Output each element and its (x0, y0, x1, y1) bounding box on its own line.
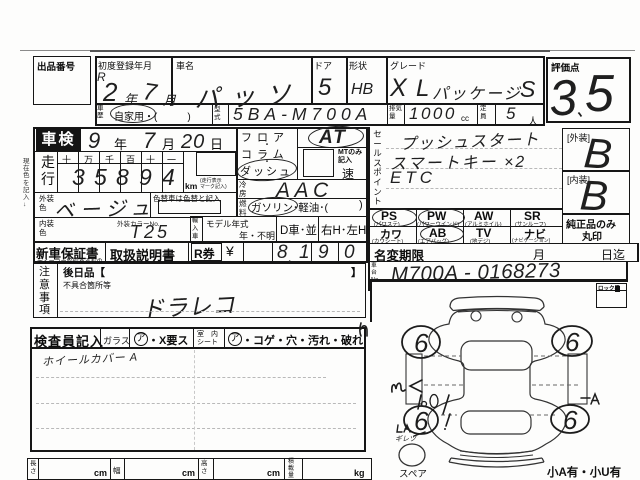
svg-text:6: 6 (563, 405, 578, 435)
svg-text:6: 6 (565, 327, 580, 357)
svg-text:小A有・小U有: 小A有・小U有 (546, 465, 622, 479)
svg-text:スペア: スペア (399, 469, 427, 480)
svg-text:6: 6 (414, 328, 429, 358)
svg-text:6: 6 (414, 406, 429, 436)
